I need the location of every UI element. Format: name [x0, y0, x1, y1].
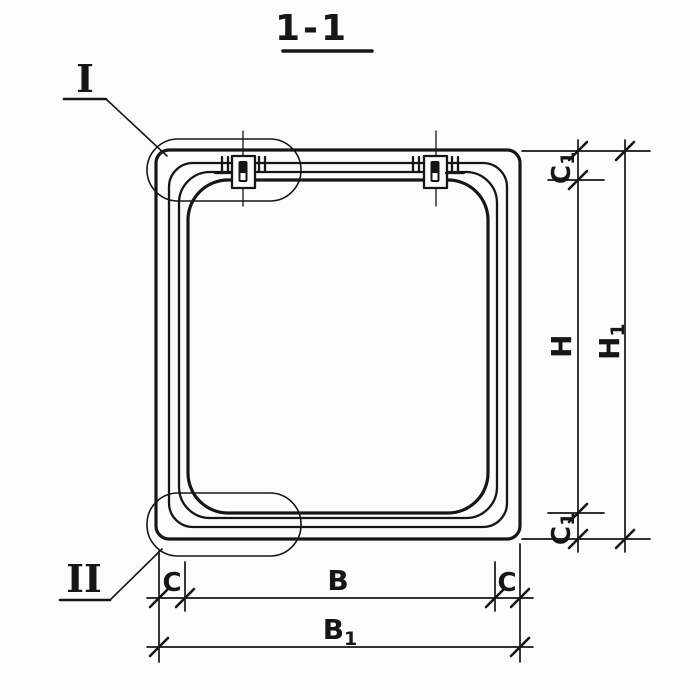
dim-text: H: [545, 335, 578, 358]
dim-text: C: [497, 568, 516, 598]
dim-text: B: [327, 564, 348, 597]
pipe-section-outline: [156, 150, 520, 539]
dim-subscript: 1: [607, 323, 629, 336]
dim-subscript: 1: [557, 513, 579, 526]
dim-subscript: 1: [557, 152, 579, 165]
dim-label-h: H: [545, 335, 578, 358]
bottom-dimensions: C B C B1: [147, 544, 533, 662]
wall-layer-line-2: [179, 172, 497, 518]
dim-text: H: [593, 337, 626, 360]
view-title: 1-1: [275, 8, 372, 51]
dim-label-c1-top: C1: [547, 152, 579, 184]
dim-label-c1-bottom: C1: [547, 513, 579, 545]
dim-label-b1: B1: [323, 613, 358, 650]
joint-insert-notch: [241, 173, 246, 180]
dim-label-h1: H1: [593, 323, 629, 360]
detail-two-label: II: [66, 556, 102, 601]
detail-two-leader: [110, 549, 162, 600]
section-drawing-canvas: 1-1 I I: [0, 0, 700, 700]
detail-one-label: I: [76, 56, 94, 101]
dim-text: C: [547, 165, 577, 184]
dim-text: B: [323, 613, 344, 646]
detail-one-leader: [106, 99, 167, 156]
view-title-text: 1-1: [275, 8, 349, 49]
detail-callout-one: I: [64, 56, 167, 156]
wall-layer-line-1: [169, 163, 507, 527]
right-dimensions: C1 H C1 H1: [522, 140, 650, 552]
dim-label-c-left: C: [162, 568, 181, 598]
dim-label-c-right: C: [497, 568, 516, 598]
dim-text: C: [162, 568, 181, 598]
dim-subscript: 1: [344, 628, 357, 650]
joint-insert-notch: [433, 173, 438, 180]
outer-contour: [156, 150, 520, 539]
detail-callout-two: II: [60, 549, 162, 601]
top-joint-feature-left: [215, 131, 265, 206]
top-joint-feature-right: [413, 131, 464, 206]
dim-label-b: B: [327, 564, 348, 597]
inner-cavity-contour: [188, 180, 488, 513]
dim-text: C: [547, 526, 577, 545]
